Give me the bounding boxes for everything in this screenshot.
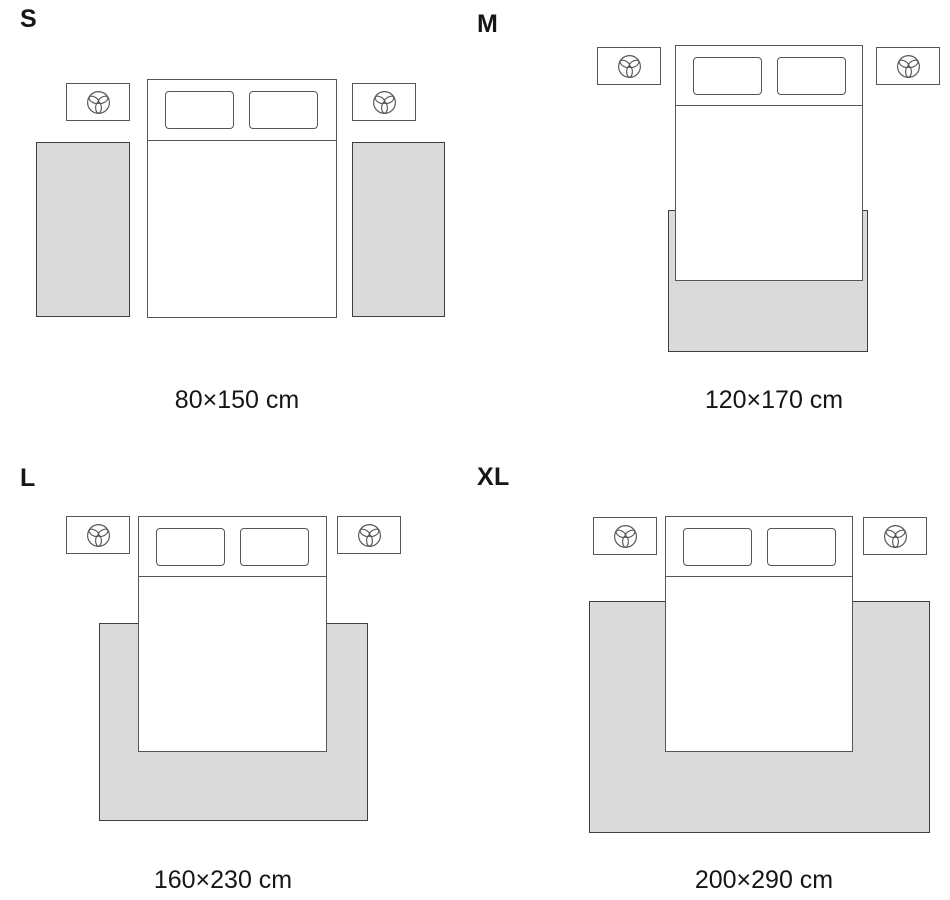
- pillow-right: [767, 528, 836, 566]
- nightstand-left: [66, 516, 130, 554]
- bed-headboard-divider: [665, 576, 853, 577]
- panel-s-dimensions: 80×150 cm: [87, 386, 387, 414]
- nightstand-right: [876, 47, 940, 85]
- plant-icon: [892, 50, 925, 83]
- bed: [675, 45, 863, 281]
- panel-s-label: S: [20, 7, 37, 32]
- nightstand-left: [597, 47, 661, 85]
- panel-m-dimensions: 120×170 cm: [624, 386, 924, 414]
- pillow-left: [165, 91, 234, 129]
- panel-xl-dimensions: 200×290 cm: [614, 866, 914, 894]
- nightstand-right: [863, 517, 927, 555]
- rug-size-guide-diagram: S 80×150 cm M: [0, 0, 950, 900]
- panel-m-label: M: [477, 12, 498, 37]
- bed: [665, 516, 853, 752]
- pillow-right: [777, 57, 846, 95]
- pillow-right: [240, 528, 309, 566]
- pillow-right: [249, 91, 318, 129]
- bed-headboard-divider: [138, 576, 327, 577]
- plant-icon: [82, 86, 115, 119]
- pillow-left: [156, 528, 225, 566]
- plant-icon: [609, 520, 642, 553]
- nightstand-left: [593, 517, 657, 555]
- pillow-left: [683, 528, 752, 566]
- bed-headboard-divider: [675, 105, 863, 106]
- panel-l-label: L: [20, 466, 36, 491]
- rug-left-runner: [36, 142, 130, 317]
- nightstand-left: [66, 83, 130, 121]
- panel-xl-label: XL: [477, 465, 510, 490]
- panel-l-dimensions: 160×230 cm: [73, 866, 373, 894]
- nightstand-right: [352, 83, 416, 121]
- plant-icon: [353, 519, 386, 552]
- bed: [138, 516, 327, 752]
- plant-icon: [879, 520, 912, 553]
- nightstand-right: [337, 516, 401, 554]
- bed-headboard-divider: [147, 140, 337, 141]
- plant-icon: [368, 86, 401, 119]
- plant-icon: [82, 519, 115, 552]
- bed: [147, 79, 337, 318]
- plant-icon: [613, 50, 646, 83]
- rug-right-runner: [352, 142, 445, 317]
- pillow-left: [693, 57, 762, 95]
